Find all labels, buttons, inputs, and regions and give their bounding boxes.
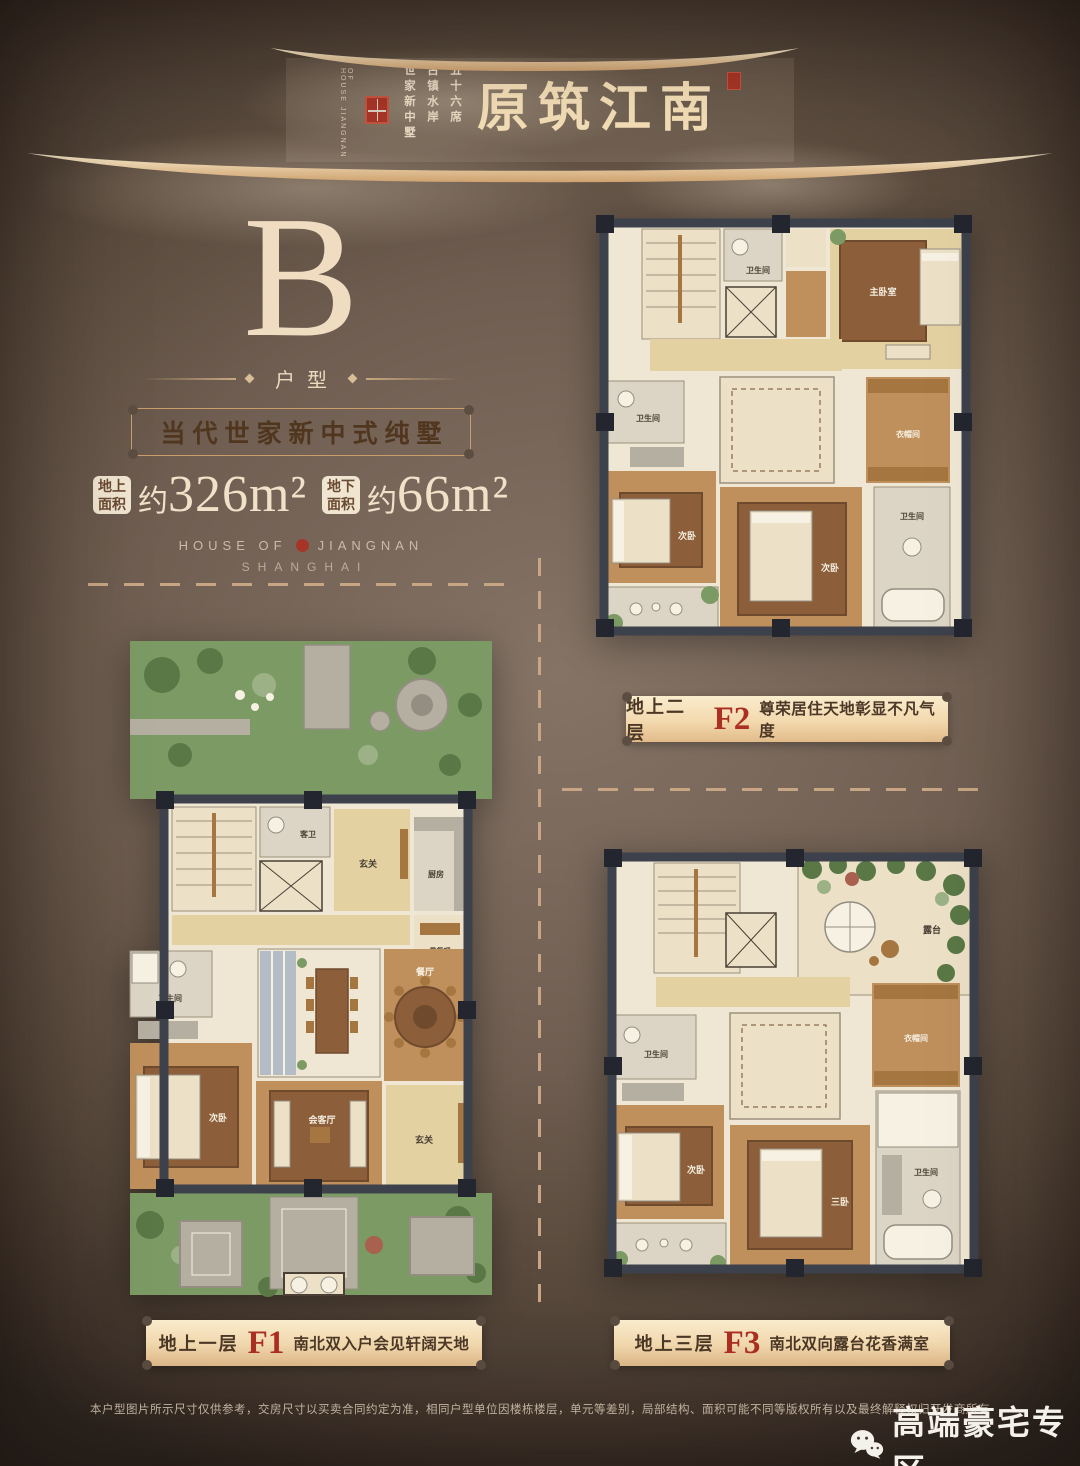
room-label: 卫生间 bbox=[914, 1167, 938, 1177]
area-basement: 地下 面积 约 66m² bbox=[322, 469, 509, 521]
room-label: 主卧室 bbox=[869, 286, 896, 297]
plan-shape bbox=[772, 619, 790, 637]
floor-plan-f2-svg: 卫生间主卧室卫生间次卧次卧衣帽间卫生间 bbox=[590, 207, 980, 645]
plan-shape bbox=[604, 1259, 622, 1277]
floor-plan-f1-svg: 客卫玄关厨房早餐吧餐厅卫生间次卧会客厅玄关 bbox=[118, 633, 503, 1305]
plan-shape bbox=[964, 1057, 982, 1075]
wechat-badge: 高端豪宅专区 bbox=[850, 1396, 1080, 1466]
plan-shape bbox=[596, 413, 614, 431]
plan-shape bbox=[660, 1239, 668, 1247]
room-label: 卫生间 bbox=[900, 511, 924, 521]
wechat-icon bbox=[850, 1427, 884, 1461]
floor-desc: 南北双向露台花香满室 bbox=[769, 1332, 929, 1354]
plaque-notch bbox=[622, 692, 632, 702]
plan-shape bbox=[762, 1151, 820, 1161]
plaque-notch bbox=[142, 1316, 152, 1326]
plan-shape bbox=[400, 829, 408, 879]
plan-shape bbox=[304, 645, 350, 729]
room-label: 衣帽间 bbox=[904, 1033, 928, 1043]
plan-shape bbox=[943, 874, 965, 896]
plan-shape bbox=[291, 1277, 307, 1293]
plaque-notch bbox=[944, 1316, 954, 1326]
room-label: 露台 bbox=[923, 924, 941, 935]
floor-desc: 尊荣居住天地彰显不凡气度 bbox=[759, 697, 948, 741]
dashed-divider-horizontal bbox=[88, 583, 520, 586]
plan-shape bbox=[310, 1127, 330, 1143]
wechat-label: 高端豪宅专区 bbox=[892, 1396, 1080, 1466]
room-label: 次卧 bbox=[687, 1164, 705, 1175]
plan-shape bbox=[868, 379, 948, 393]
plan-shape bbox=[180, 1221, 242, 1287]
plan-shape bbox=[596, 619, 614, 637]
plan-shape bbox=[604, 1057, 622, 1075]
room-label: 卫生间 bbox=[636, 413, 660, 423]
plan-shape bbox=[458, 1179, 476, 1197]
plan-shape bbox=[297, 958, 307, 968]
plan-shape bbox=[954, 215, 972, 233]
plan-shape bbox=[817, 880, 831, 894]
plan-shape bbox=[954, 619, 972, 637]
poster-page: HOUSE OF JIANGNAN 世家新中墅 古镇水岸 五十六席 原筑江南 B… bbox=[0, 0, 1080, 1466]
plan-shape bbox=[772, 215, 790, 233]
plan-shape bbox=[252, 673, 276, 697]
area-badge: 地下 面积 bbox=[322, 476, 360, 514]
plan-shape bbox=[260, 807, 330, 857]
plan-shape bbox=[266, 693, 274, 701]
room-label: 次卧 bbox=[821, 562, 839, 573]
room-label: 会客厅 bbox=[308, 1114, 335, 1125]
divider-line bbox=[142, 378, 236, 380]
eave-roof-icon bbox=[22, 148, 1058, 186]
plan-shape bbox=[874, 1071, 958, 1085]
plan-shape bbox=[886, 345, 930, 359]
plan-shape bbox=[156, 791, 174, 809]
floor-plaque-f2: 地上二层 F2 尊荣居住天地彰显不凡气度 bbox=[626, 696, 948, 742]
plaque-notch bbox=[128, 405, 138, 415]
plan-shape bbox=[212, 813, 216, 897]
plan-shape bbox=[935, 892, 949, 906]
plan-shape bbox=[458, 693, 482, 717]
brand-seal-icon bbox=[365, 96, 389, 124]
plan-shape bbox=[869, 956, 879, 966]
room-label: 餐厅 bbox=[415, 966, 434, 977]
plan-shape bbox=[650, 339, 842, 371]
plan-shape bbox=[604, 849, 622, 867]
plan-shape bbox=[752, 513, 810, 523]
plan-shape bbox=[670, 603, 682, 615]
plan-shape bbox=[720, 377, 834, 483]
plan-shape bbox=[652, 603, 660, 611]
plaque-notch bbox=[944, 1360, 954, 1370]
eave-roof-icon bbox=[268, 44, 802, 74]
room-label: 三卧 bbox=[831, 1196, 849, 1207]
plan-shape bbox=[954, 413, 972, 431]
plan-shape bbox=[251, 703, 259, 711]
plaque-notch bbox=[610, 1316, 620, 1326]
plan-shape bbox=[132, 953, 158, 983]
plan-shape bbox=[656, 977, 850, 1007]
unit-info-panel: B 户型 当代世家新中式纯墅 地上 面积 约 326m² bbox=[100, 190, 502, 574]
plan-shape bbox=[701, 586, 719, 604]
area-badge-line: 地下 bbox=[327, 477, 355, 495]
plan-shape bbox=[882, 1155, 902, 1215]
unit-slogan-text: 当代世家新中式纯墅 bbox=[153, 414, 448, 450]
plan-shape bbox=[316, 969, 348, 1053]
unit-letter: B bbox=[100, 190, 502, 364]
plan-shape bbox=[618, 391, 634, 407]
plan-shape bbox=[732, 239, 748, 255]
plan-shape bbox=[413, 1005, 437, 1029]
plan-shape bbox=[420, 923, 460, 935]
plan-shape bbox=[614, 501, 624, 561]
room-label: 厨房 bbox=[428, 869, 444, 879]
plan-shape bbox=[750, 511, 812, 601]
brand-logo: 原筑江南 bbox=[477, 84, 721, 136]
plan-shape bbox=[321, 1277, 337, 1293]
plan-shape bbox=[297, 1060, 307, 1070]
plan-shape bbox=[358, 745, 378, 765]
plan-shape bbox=[408, 647, 436, 675]
area-value: 约 66m² bbox=[367, 469, 509, 521]
floor-code: F3 bbox=[724, 1327, 761, 1360]
room-label: 卫生间 bbox=[746, 265, 770, 275]
plan-shape bbox=[130, 719, 250, 735]
plaque-notch bbox=[464, 405, 474, 415]
plan-shape bbox=[306, 1021, 314, 1033]
plaque-notch bbox=[622, 736, 632, 746]
plan-shape bbox=[620, 1135, 632, 1199]
brand-city: SHANGHAI bbox=[100, 560, 502, 574]
diamond-icon bbox=[245, 374, 255, 384]
brand-line-left: HOUSE OF bbox=[179, 538, 287, 553]
room-label: 次卧 bbox=[209, 1112, 227, 1123]
divider-line bbox=[366, 378, 460, 380]
plan-shape bbox=[950, 905, 970, 925]
plan-shape bbox=[856, 861, 876, 881]
room-label: 玄关 bbox=[415, 1134, 433, 1145]
plan-shape bbox=[156, 1001, 174, 1019]
plan-shape bbox=[845, 872, 859, 886]
plan-shape bbox=[439, 754, 461, 776]
plan-shape bbox=[370, 711, 390, 731]
plaque-notch bbox=[464, 449, 474, 459]
plan-shape bbox=[420, 976, 430, 986]
plan-shape bbox=[304, 791, 322, 809]
plan-shape bbox=[868, 467, 948, 481]
room-label: 衣帽间 bbox=[896, 429, 920, 439]
brand-en-vertical: HOUSE OF JIANGNAN bbox=[339, 68, 353, 152]
plan-shape bbox=[235, 690, 245, 700]
plaque-notch bbox=[142, 1360, 152, 1370]
plan-shape bbox=[304, 1179, 322, 1197]
floor-prefix: 地上三层 bbox=[635, 1330, 715, 1356]
plan-shape bbox=[394, 1038, 404, 1048]
plan-shape bbox=[636, 1239, 648, 1251]
area-number: 66m² bbox=[397, 469, 509, 521]
plaque-notch bbox=[476, 1316, 486, 1326]
plan-shape bbox=[365, 1236, 383, 1254]
plan-shape bbox=[274, 1101, 290, 1167]
plan-shape bbox=[458, 791, 476, 809]
plan-shape bbox=[260, 951, 296, 1075]
plaque-notch bbox=[942, 736, 952, 746]
plaque-notch bbox=[476, 1360, 486, 1370]
plan-shape bbox=[411, 694, 433, 716]
plan-shape bbox=[786, 849, 804, 867]
plan-shape bbox=[138, 1077, 150, 1157]
floor-plan-f1: 客卫玄关厨房早餐吧餐厅卫生间次卧会客厅玄关 bbox=[118, 633, 503, 1305]
plan-shape bbox=[596, 215, 614, 233]
plan-shape bbox=[622, 1083, 684, 1101]
plan-shape bbox=[802, 859, 822, 879]
floor-prefix: 地上一层 bbox=[159, 1330, 239, 1356]
room-label: 卫生间 bbox=[644, 1049, 668, 1059]
plan-shape bbox=[268, 817, 284, 833]
plan-shape bbox=[170, 961, 186, 977]
unit-type-label: 户型 bbox=[263, 364, 339, 393]
room-label: 次卧 bbox=[678, 530, 696, 541]
diamond-icon bbox=[348, 374, 358, 384]
plan-shape bbox=[612, 1015, 696, 1079]
area-approx: 约 bbox=[367, 476, 397, 520]
room-label: 玄关 bbox=[359, 858, 377, 869]
plan-shape bbox=[630, 447, 684, 467]
plan-shape bbox=[612, 1223, 726, 1267]
area-row: 地上 面积 约 326m² 地下 面积 约 66m² bbox=[100, 469, 502, 521]
brand-line-right: JIANGNAN bbox=[318, 538, 424, 553]
area-badge-line: 面积 bbox=[327, 495, 355, 513]
plan-shape bbox=[410, 1217, 474, 1275]
area-value: 约 326m² bbox=[138, 469, 307, 521]
floor-code: F2 bbox=[714, 703, 751, 736]
plan-shape bbox=[964, 1259, 982, 1277]
logo-mini-seal-icon bbox=[727, 72, 741, 90]
plaque-notch bbox=[942, 692, 952, 702]
plan-shape bbox=[884, 1225, 952, 1259]
plan-shape bbox=[937, 964, 955, 982]
plan-shape bbox=[394, 986, 404, 996]
floor-prefix: 地上二层 bbox=[626, 693, 705, 745]
plaque-notch bbox=[128, 449, 138, 459]
plan-shape bbox=[306, 977, 314, 989]
slogan-column: 五十六席 bbox=[447, 64, 463, 156]
slogan-column: 世家新中墅 bbox=[401, 64, 417, 156]
plan-shape bbox=[350, 1021, 358, 1033]
plan-shape bbox=[760, 1149, 822, 1237]
plan-shape bbox=[680, 1239, 692, 1251]
floor-plan-f3-svg: 露台下卫生间次卧三卧衣帽间卫生间 bbox=[598, 843, 988, 1305]
plan-shape bbox=[922, 253, 958, 261]
plan-shape bbox=[678, 235, 682, 323]
plan-shape bbox=[916, 861, 936, 881]
dashed-divider-horizontal bbox=[562, 788, 990, 791]
plan-shape bbox=[384, 1012, 394, 1022]
unit-slogan-plaque: 当代世家新中式纯墅 bbox=[131, 408, 471, 456]
plan-shape bbox=[446, 986, 456, 996]
floor-plaque-f3: 地上三层 F3 南北双向露台花香满室 bbox=[614, 1320, 950, 1366]
plan-shape bbox=[923, 1190, 941, 1208]
plan-shape bbox=[156, 1179, 174, 1197]
area-approx: 约 bbox=[138, 476, 168, 520]
plan-shape bbox=[624, 1027, 640, 1043]
plan-shape bbox=[420, 1048, 430, 1058]
plan-shape bbox=[606, 381, 684, 443]
unit-type-row: 户型 bbox=[100, 364, 502, 393]
floor-code: F1 bbox=[248, 1327, 285, 1360]
plan-shape bbox=[350, 999, 358, 1011]
plan-shape bbox=[964, 849, 982, 867]
floor-plan-f2: 卫生间主卧室卫生间次卧次卧衣帽间卫生间 bbox=[590, 207, 980, 645]
plan-shape bbox=[786, 1259, 804, 1277]
plan-shape bbox=[172, 915, 410, 945]
plan-shape bbox=[168, 743, 192, 767]
slogan-column: 古镇水岸 bbox=[424, 64, 440, 156]
area-badge: 地上 面积 bbox=[93, 476, 131, 514]
plan-shape bbox=[730, 1013, 840, 1119]
room-label: 客卫 bbox=[299, 829, 316, 839]
plan-shape bbox=[458, 1001, 476, 1019]
plan-shape bbox=[830, 229, 846, 245]
area-number: 326m² bbox=[168, 469, 307, 521]
plan-shape bbox=[446, 1038, 456, 1048]
plan-shape bbox=[144, 657, 180, 693]
plan-shape bbox=[786, 271, 826, 337]
plan-shape bbox=[306, 999, 314, 1011]
plan-shape bbox=[350, 977, 358, 989]
plan-shape bbox=[786, 229, 826, 267]
plan-shape bbox=[947, 936, 965, 954]
plan-shape bbox=[350, 1101, 366, 1167]
seal-dot-icon bbox=[296, 539, 309, 552]
dashed-divider-vertical bbox=[538, 558, 541, 1303]
area-badge-line: 面积 bbox=[98, 495, 126, 513]
floor-desc: 南北双入户会见轩阔天地 bbox=[293, 1332, 469, 1354]
plan-shape bbox=[881, 940, 899, 958]
plan-shape bbox=[136, 1211, 164, 1239]
plan-shape bbox=[197, 648, 223, 674]
plan-shape bbox=[882, 589, 944, 621]
plaque-notch bbox=[610, 1360, 620, 1370]
area-above-ground: 地上 面积 约 326m² bbox=[93, 469, 307, 521]
brand-line: HOUSE OF JIANGNAN bbox=[100, 538, 502, 553]
plan-shape bbox=[878, 1093, 958, 1147]
plan-shape bbox=[694, 869, 698, 957]
floor-plan-f3: 露台下卫生间次卧三卧衣帽间卫生间 bbox=[598, 843, 988, 1305]
plan-shape bbox=[630, 603, 642, 615]
area-badge-line: 地上 bbox=[98, 477, 126, 495]
plan-shape bbox=[874, 985, 958, 999]
plan-shape bbox=[903, 538, 921, 556]
floor-plaque-f1: 地上一层 F1 南北双入户会见轩阔天地 bbox=[146, 1320, 482, 1366]
brand-slogan-columns: 世家新中墅 古镇水岸 五十六席 bbox=[401, 64, 463, 156]
